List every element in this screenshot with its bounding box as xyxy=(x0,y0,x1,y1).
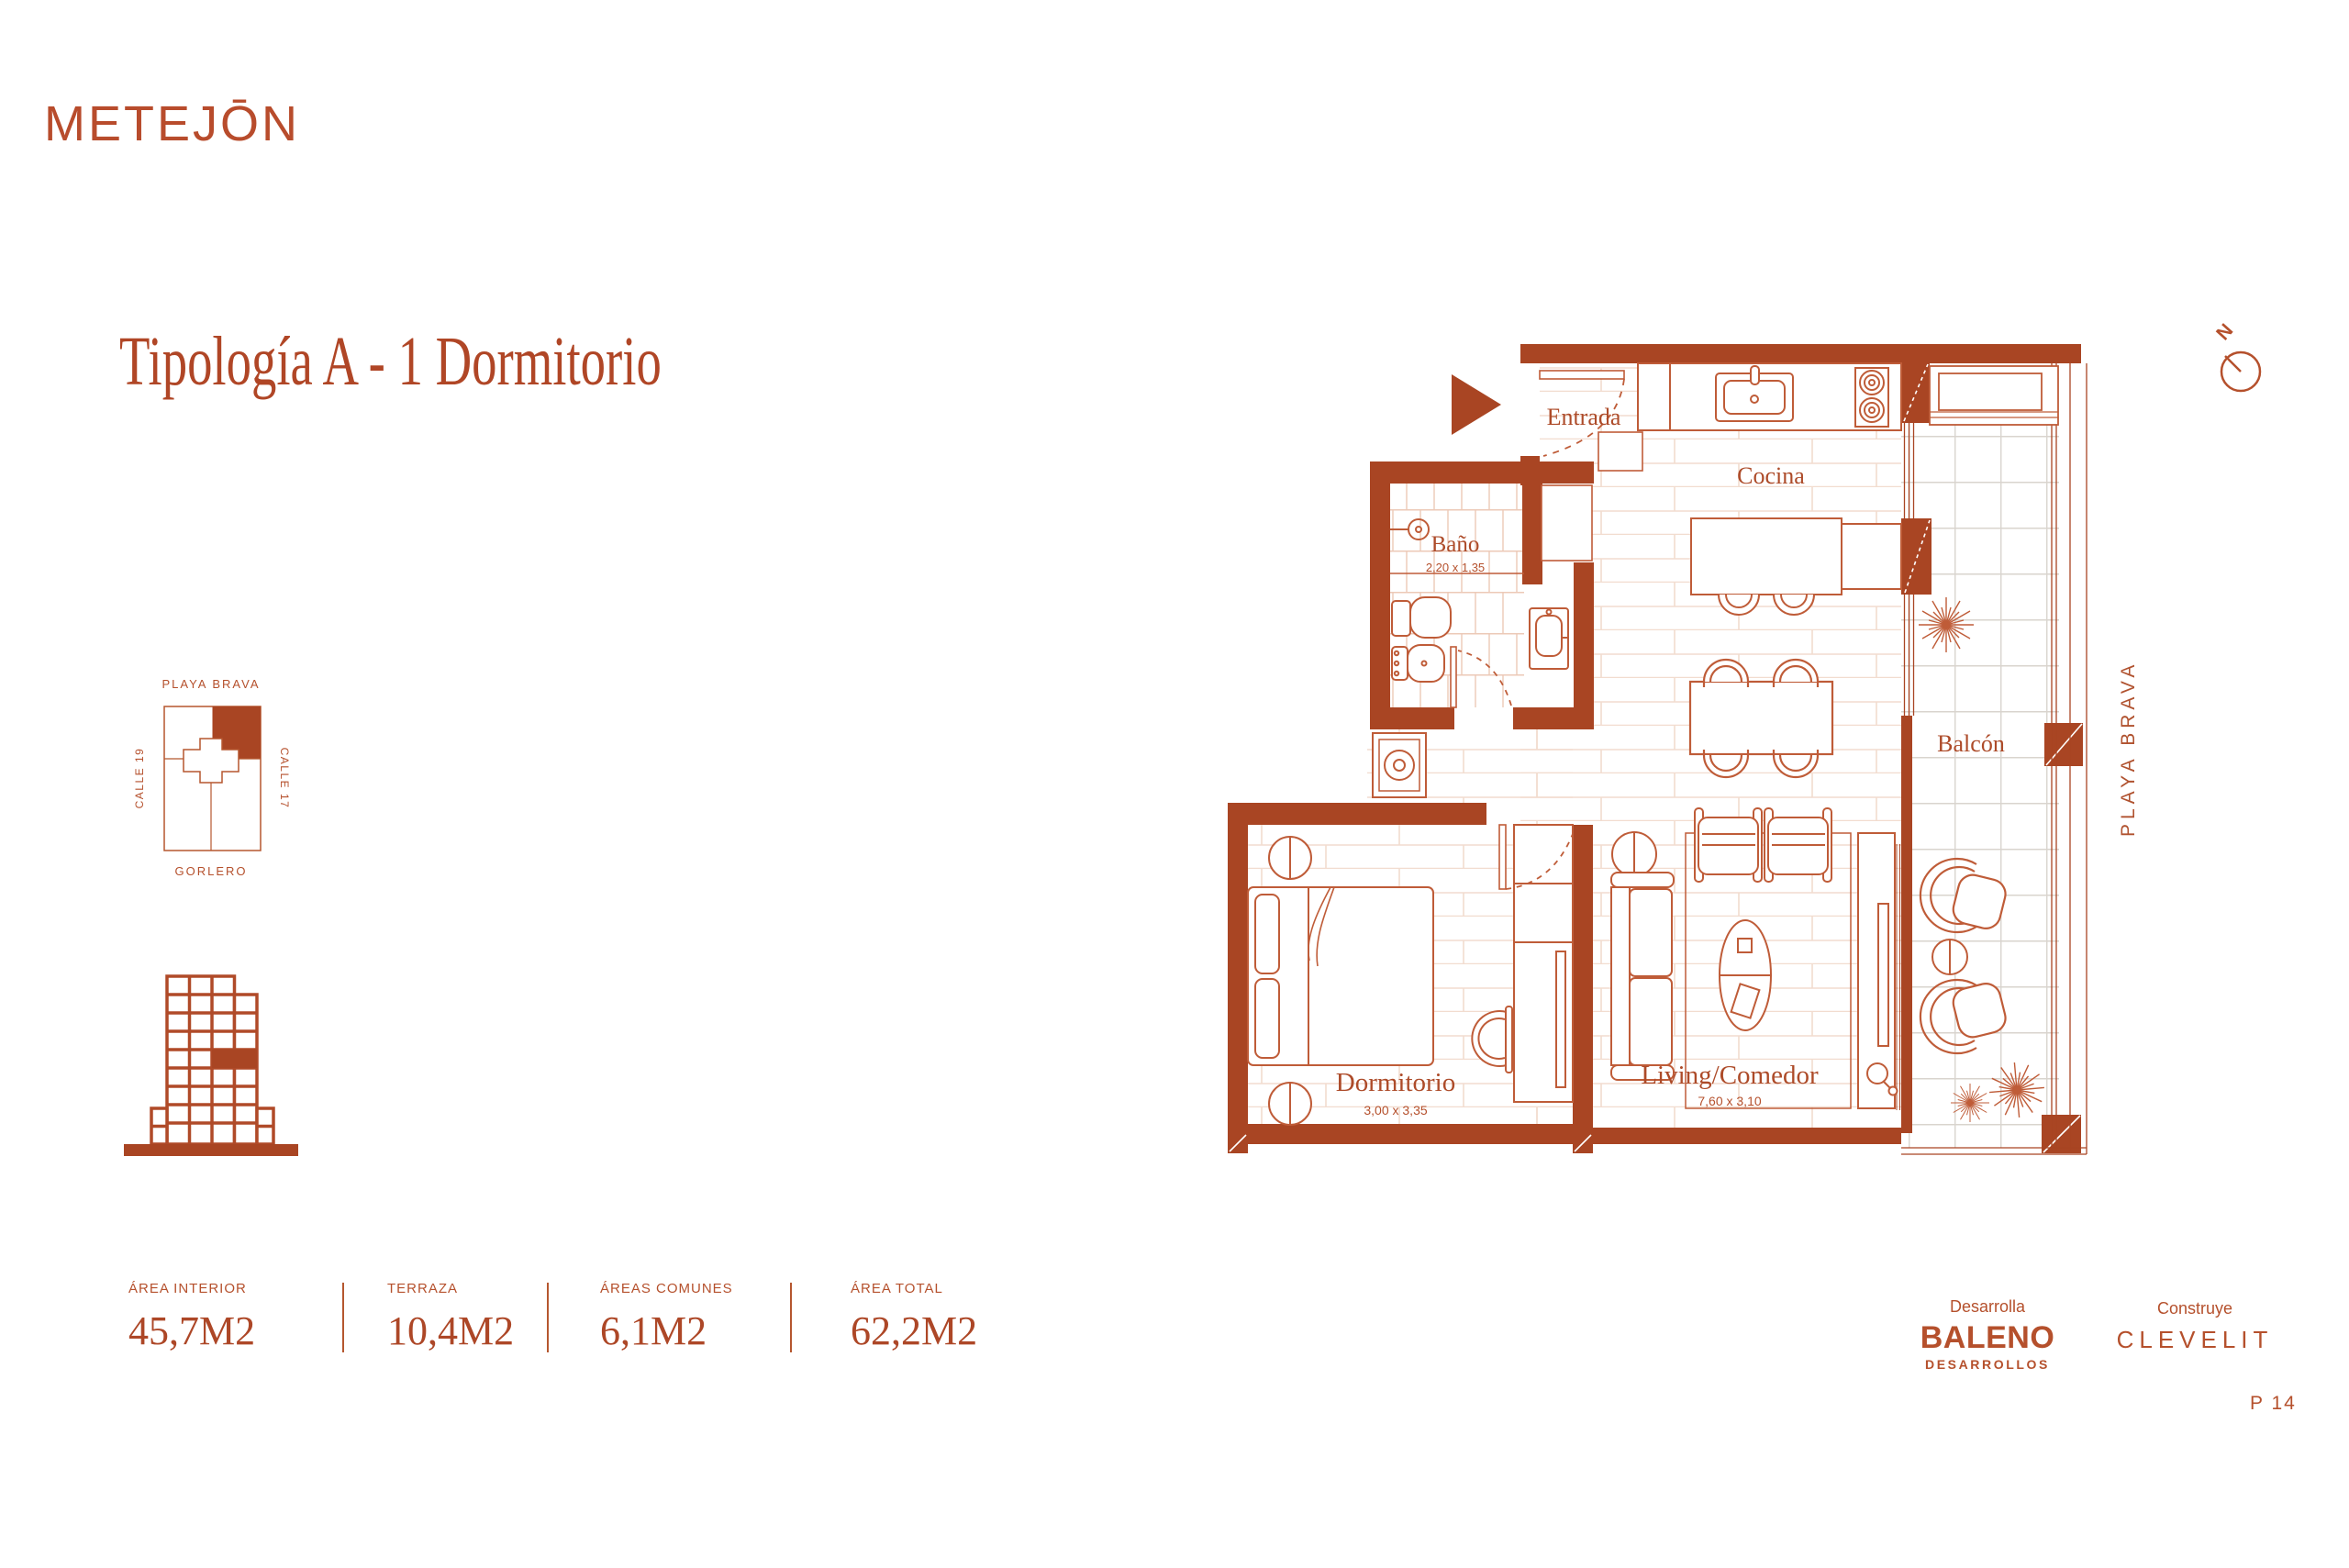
stat-value: 10,4M2 xyxy=(387,1307,607,1354)
building-highlight-floor xyxy=(212,1050,257,1068)
entry-closet xyxy=(1598,432,1642,471)
builder-logo: CLEVELIT xyxy=(2112,1326,2277,1354)
north-compass-icon: N xyxy=(2200,303,2292,395)
developer-block: Desarrolla BALENO DESARROLLOS xyxy=(1914,1297,2061,1372)
stat-area-total: ÁREA TOTAL 62,2M2 xyxy=(851,1281,1071,1354)
stat-value: 6,1M2 xyxy=(600,1307,820,1354)
stat-separator xyxy=(342,1283,344,1352)
site-map-top-label: PLAYA BRAVA xyxy=(161,677,260,691)
site-map-left-label: CALLE 19 xyxy=(133,748,146,809)
floor-plan: Entrada Cocina Baño 2,20 x 1,35 Balcón D… xyxy=(1220,344,2101,1179)
label-balcon: Balcón xyxy=(1937,730,2005,757)
site-map-right-label: CALLE 17 xyxy=(278,748,291,809)
nightstand xyxy=(1269,1083,1311,1125)
bedroom-door-leaf xyxy=(1499,825,1506,889)
dining-table xyxy=(1690,682,1832,754)
wardrobe xyxy=(1514,825,1573,1102)
developer-caption: Desarrolla xyxy=(1914,1297,2061,1317)
stat-area-interior: ÁREA INTERIOR 45,7M2 xyxy=(128,1281,349,1354)
kitchen-island xyxy=(1691,518,1901,595)
kitchen-counter xyxy=(1638,363,1901,430)
building-base xyxy=(124,1144,298,1156)
bathroom-door-leaf xyxy=(1451,647,1456,707)
label-bano: Baño xyxy=(1431,532,1480,557)
coffee-table xyxy=(1720,920,1771,1030)
developer-sublogo: DESARROLLOS xyxy=(1914,1357,2061,1372)
stat-terraza: TERRAZA 10,4M2 xyxy=(387,1281,607,1354)
builder-block: Construye CLEVELIT xyxy=(2112,1299,2277,1354)
bed xyxy=(1248,887,1433,1065)
tv-unit xyxy=(1858,833,1898,1108)
label-cocina: Cocina xyxy=(1737,462,1805,489)
brand-logo: METEJŌN xyxy=(44,95,300,152)
label-living: Living/Comedor xyxy=(1641,1061,1819,1090)
stat-value: 45,7M2 xyxy=(128,1307,349,1354)
stat-areas-comunes: ÁREAS COMUNES 6,1M2 xyxy=(600,1281,820,1354)
balcony-table xyxy=(1932,940,1967,974)
label-dormitorio: Dormitorio xyxy=(1336,1068,1456,1097)
page-title: Tipología A - 1 Dormitorio xyxy=(119,327,662,396)
building-icon xyxy=(119,966,303,1163)
door-handle-icon xyxy=(1867,1063,1887,1084)
side-table xyxy=(1612,832,1656,876)
label-living-dims: 7,60 x 3,10 xyxy=(1698,1094,1761,1108)
label-dormitorio-dims: 3,00 x 3,35 xyxy=(1364,1103,1427,1118)
entry-door-leaf xyxy=(1540,371,1624,379)
toilet xyxy=(1392,601,1410,636)
site-map: PLAYA BRAVA CALLE 19 CALLE 17 GORLERO xyxy=(103,662,323,883)
site-map-bottom-label: GORLERO xyxy=(174,864,247,878)
stat-value: 62,2M2 xyxy=(851,1307,1071,1354)
stat-separator xyxy=(790,1283,792,1352)
armchair xyxy=(1765,808,1831,882)
stat-label: ÁREAS COMUNES xyxy=(600,1281,820,1296)
label-bano-dims: 2,20 x 1,35 xyxy=(1426,561,1485,574)
page-number: P 14 xyxy=(2250,1393,2297,1415)
label-entrada: Entrada xyxy=(1547,404,1621,430)
nightstand xyxy=(1269,837,1311,879)
developer-logo: BALENO xyxy=(1914,1320,2061,1356)
north-letter: N xyxy=(2212,320,2237,345)
street-label: PLAYA BRAVA xyxy=(2118,662,2140,837)
washer-closet xyxy=(1373,733,1426,797)
sofa xyxy=(1611,873,1674,1080)
stat-label: ÁREA INTERIOR xyxy=(128,1281,349,1296)
entry-arrow-icon xyxy=(1452,374,1501,435)
stat-label: ÁREA TOTAL xyxy=(851,1281,1071,1296)
armchair xyxy=(1695,808,1762,882)
stat-label: TERRAZA xyxy=(387,1281,607,1296)
hall-closet xyxy=(1542,485,1592,561)
stat-separator xyxy=(547,1283,549,1352)
builder-caption: Construye xyxy=(2112,1299,2277,1318)
brochure-page: METEJŌN Tipología A - 1 Dormitorio PLAYA… xyxy=(0,0,2349,1568)
balcony-planter xyxy=(1930,366,2058,425)
